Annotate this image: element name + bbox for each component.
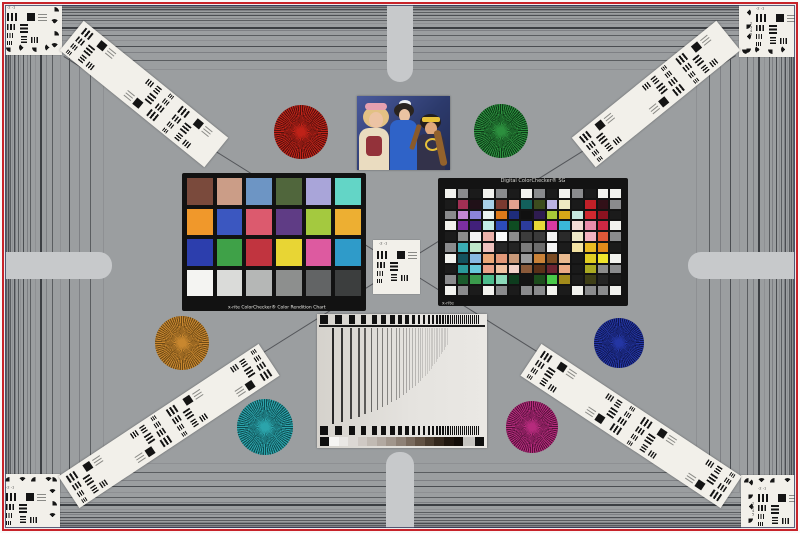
bar-triplet bbox=[756, 34, 762, 39]
bar-triplet bbox=[30, 517, 37, 523]
bar-triplet bbox=[605, 393, 614, 402]
bar-triplet bbox=[771, 505, 779, 514]
sg-patch bbox=[547, 211, 558, 220]
figure-left-crown bbox=[365, 103, 387, 110]
bar-triplet bbox=[146, 109, 159, 122]
sg-patch bbox=[496, 275, 507, 284]
bar-triplet bbox=[640, 417, 653, 429]
sg-patch bbox=[458, 265, 469, 274]
sg-patch bbox=[559, 189, 570, 198]
barcode-bar bbox=[442, 426, 443, 435]
fan-wedge bbox=[6, 43, 15, 52]
bar-triplet bbox=[174, 132, 183, 141]
fan-wedge bbox=[742, 45, 751, 54]
bar-triplet bbox=[177, 424, 185, 431]
sg-patch bbox=[572, 232, 583, 241]
bar-triplet bbox=[153, 85, 162, 94]
fan-wedge bbox=[5, 477, 14, 486]
sg-patch bbox=[534, 189, 545, 198]
bar-triplet bbox=[758, 505, 766, 511]
sg-patch bbox=[547, 275, 558, 284]
bar-triplet bbox=[190, 418, 199, 427]
black-square bbox=[594, 413, 605, 424]
color-patch bbox=[306, 270, 332, 297]
color-patch bbox=[246, 239, 272, 266]
barcode-bar bbox=[474, 315, 475, 324]
figure-left-face bbox=[369, 112, 383, 128]
sg-patch bbox=[470, 243, 481, 252]
sweep-line bbox=[412, 328, 413, 388]
sg-patch bbox=[547, 265, 558, 274]
sg-patch bbox=[483, 232, 494, 241]
sg-patch bbox=[458, 254, 469, 263]
barcode-bar bbox=[458, 426, 459, 435]
sg-patch bbox=[483, 211, 494, 220]
registration-capsule-bottom bbox=[386, 452, 414, 530]
color-patch bbox=[217, 270, 243, 297]
fan-wedge bbox=[31, 477, 40, 486]
sg-patch bbox=[470, 275, 481, 284]
bar-triplet bbox=[624, 411, 632, 418]
sg-patch bbox=[585, 211, 596, 220]
barcode-bar bbox=[452, 426, 453, 435]
sg-patch bbox=[598, 243, 609, 252]
fine-print-row bbox=[789, 501, 798, 502]
barcode-bar bbox=[423, 315, 426, 324]
sweep-line bbox=[422, 328, 423, 378]
bar-triplet bbox=[758, 514, 764, 519]
bar-triplet bbox=[130, 430, 139, 439]
bar-triplet bbox=[635, 426, 645, 435]
ramp-step bbox=[386, 437, 396, 446]
card-scale-labels: -2 -1 bbox=[6, 486, 14, 490]
card-scale-labels: -2 -1 bbox=[7, 6, 15, 10]
bar-triplet bbox=[772, 517, 778, 524]
colorchecker-sg: Digital ColorChecker® SG x-rite bbox=[438, 178, 628, 306]
barcode-bar bbox=[462, 426, 463, 435]
sweep-line bbox=[387, 328, 388, 405]
sg-patch bbox=[547, 254, 558, 263]
sg-patch bbox=[559, 243, 570, 252]
sg-patch bbox=[559, 286, 570, 295]
bar-triplet bbox=[7, 33, 13, 38]
color-patch bbox=[306, 178, 332, 205]
barcode-bar bbox=[428, 426, 430, 435]
sg-patch bbox=[509, 243, 520, 252]
fan-wedge bbox=[783, 478, 792, 487]
bar-triplet bbox=[99, 479, 108, 488]
sg-patch bbox=[458, 232, 469, 241]
barcode-bar bbox=[470, 315, 471, 324]
bar-triplet bbox=[6, 513, 12, 518]
sg-patch bbox=[496, 221, 507, 230]
sg-patch bbox=[598, 275, 609, 284]
siemens-star-magenta bbox=[506, 401, 558, 453]
black-square bbox=[594, 119, 605, 130]
bar-triplet bbox=[672, 84, 685, 97]
barcode-bar bbox=[474, 426, 475, 435]
barcode-bar bbox=[320, 426, 328, 435]
fine-print-row bbox=[408, 252, 417, 253]
sg-patch bbox=[559, 275, 570, 284]
sg-patch bbox=[534, 265, 545, 274]
sg-patch bbox=[585, 232, 596, 241]
sg-patch bbox=[534, 221, 545, 230]
sg-patch bbox=[470, 286, 481, 295]
fan-wedge bbox=[48, 489, 57, 498]
bar-triplet bbox=[75, 36, 85, 46]
black-square bbox=[145, 446, 156, 457]
registration-capsule-left bbox=[3, 252, 112, 279]
colorchecker-sg-title: Digital ColorChecker® SG bbox=[486, 178, 581, 184]
sg-patch bbox=[496, 265, 507, 274]
barcode-bar bbox=[349, 315, 355, 324]
card-scale-labels: -2 -1 bbox=[756, 7, 764, 11]
barcode-bar bbox=[361, 426, 367, 435]
sg-patch bbox=[598, 254, 609, 263]
color-patch bbox=[335, 178, 361, 205]
sg-patch bbox=[483, 200, 494, 209]
fine-print-row bbox=[37, 497, 46, 498]
sg-patch bbox=[559, 232, 570, 241]
bar-triplet bbox=[706, 473, 718, 485]
fan-wedge bbox=[742, 20, 751, 29]
color-patch bbox=[335, 209, 361, 236]
bar-triplet bbox=[244, 366, 256, 378]
test-chart-scene: x-rite ColorChecker® Color Rendition Cha… bbox=[0, 0, 800, 533]
bar-triplet bbox=[177, 106, 190, 119]
sweep-line bbox=[371, 328, 372, 412]
barcode-bar bbox=[456, 426, 457, 435]
sg-patch bbox=[509, 189, 520, 198]
ramp-step bbox=[434, 437, 444, 446]
sg-patch bbox=[598, 221, 609, 230]
sg-patch bbox=[598, 286, 609, 295]
color-patch bbox=[306, 209, 332, 236]
sweep-line bbox=[350, 328, 352, 419]
color-patch bbox=[335, 270, 361, 297]
barcode-bar bbox=[478, 315, 479, 324]
barcode-bar bbox=[460, 426, 461, 435]
barcode-bar bbox=[390, 315, 394, 324]
sg-patch bbox=[572, 265, 583, 274]
bar-triplet bbox=[260, 369, 273, 381]
fine-print-row bbox=[37, 500, 46, 501]
corner-resolution-card-bl: -2 -12345 bbox=[2, 474, 60, 530]
sg-patch bbox=[547, 232, 558, 241]
bar-triplet bbox=[729, 472, 735, 478]
black-square bbox=[26, 493, 34, 501]
barcode-bar bbox=[445, 426, 446, 435]
sg-patch bbox=[470, 265, 481, 274]
colorchecker-sg-brand: x-rite bbox=[442, 301, 454, 306]
sg-patch bbox=[572, 286, 583, 295]
fine-print-row bbox=[408, 255, 417, 256]
card-scale-labels: 2345 bbox=[1, 21, 3, 35]
sg-patch bbox=[547, 221, 558, 230]
bar-triplet bbox=[139, 425, 148, 434]
sg-patch bbox=[521, 243, 532, 252]
bar-triplet bbox=[627, 440, 633, 446]
sweep-divider-line bbox=[319, 325, 485, 327]
sg-patch bbox=[585, 275, 596, 284]
barcode-bar bbox=[478, 426, 479, 435]
sg-patch bbox=[445, 200, 456, 209]
musicians-photo bbox=[357, 96, 450, 170]
sweep-line bbox=[425, 328, 426, 376]
sg-patch bbox=[598, 211, 609, 220]
sg-patch bbox=[534, 254, 545, 263]
sg-patch bbox=[610, 265, 621, 274]
color-patch bbox=[276, 209, 302, 236]
black-square bbox=[132, 98, 143, 109]
bar-triplet bbox=[630, 433, 638, 440]
bar-triplet bbox=[77, 490, 85, 497]
barcode-bar bbox=[428, 315, 430, 324]
color-patch bbox=[246, 270, 272, 297]
card-scale-labels: 2345 bbox=[0, 501, 2, 515]
bar-triplet bbox=[160, 435, 173, 447]
barcode-bar bbox=[372, 315, 377, 324]
bar-triplet bbox=[19, 504, 27, 513]
bar-triplet bbox=[377, 279, 382, 283]
sweep-line bbox=[396, 328, 397, 400]
color-patch bbox=[217, 239, 243, 266]
frequency-sweep-panel bbox=[317, 314, 487, 448]
color-patch bbox=[276, 178, 302, 205]
fine-print-row bbox=[37, 494, 46, 495]
sg-patch bbox=[572, 243, 583, 252]
bar-triplet bbox=[701, 64, 710, 73]
bar-triplet bbox=[153, 421, 161, 428]
barcode-bar bbox=[335, 315, 342, 324]
center-card-labels: -2 -1 bbox=[379, 242, 387, 246]
fan-wedge bbox=[742, 32, 751, 41]
bar-triplet bbox=[83, 474, 95, 486]
sg-patch bbox=[559, 265, 570, 274]
fan-wedge bbox=[768, 45, 777, 54]
sg-patch bbox=[521, 265, 532, 274]
black-square bbox=[657, 428, 668, 439]
sweep-line bbox=[341, 328, 343, 422]
bar-triplet bbox=[391, 274, 397, 281]
bar-triplet bbox=[780, 38, 787, 44]
barcode-bar bbox=[450, 426, 451, 435]
barcode-bar bbox=[381, 315, 386, 324]
color-patch bbox=[246, 209, 272, 236]
bar-triplet bbox=[182, 139, 191, 148]
barcode-bar bbox=[462, 315, 463, 324]
sg-patch bbox=[534, 275, 545, 284]
color-patch bbox=[217, 178, 243, 205]
ramp-step bbox=[367, 437, 377, 446]
sweep-line bbox=[399, 328, 400, 398]
bar-triplet bbox=[166, 121, 174, 129]
bar-triplet bbox=[656, 83, 668, 95]
barcode-bar bbox=[418, 315, 421, 324]
bar-triplet bbox=[539, 377, 548, 386]
barcode-bar bbox=[454, 426, 455, 435]
bar-triplet bbox=[90, 485, 99, 494]
sweep-line bbox=[391, 328, 392, 402]
color-patch bbox=[187, 239, 213, 266]
siemens-star-blue bbox=[594, 318, 644, 368]
bar-triplet bbox=[86, 61, 95, 70]
corner-resolution-card-br: -2 -12345 bbox=[741, 475, 798, 530]
fine-print-row bbox=[38, 20, 47, 21]
sg-patch bbox=[572, 254, 583, 263]
bar-triplet bbox=[639, 444, 648, 453]
card-scale-labels: -2 -1 bbox=[758, 487, 766, 491]
sg-patch bbox=[509, 221, 520, 230]
sg-patch bbox=[585, 189, 596, 198]
sg-patch bbox=[521, 211, 532, 220]
fine-print-row bbox=[38, 17, 47, 18]
sg-patch bbox=[572, 200, 583, 209]
barcode-bar bbox=[442, 315, 443, 324]
color-patch bbox=[246, 178, 272, 205]
sg-patch bbox=[470, 221, 481, 230]
sg-patch bbox=[521, 232, 532, 241]
sg-patch bbox=[509, 275, 520, 284]
fine-print-row bbox=[789, 495, 798, 496]
barcode-bar bbox=[447, 315, 448, 324]
sg-patch bbox=[610, 232, 621, 241]
fine-print-row bbox=[787, 18, 796, 19]
bar-triplet bbox=[693, 78, 699, 84]
bar-triplet bbox=[20, 516, 26, 523]
registration-capsule-right bbox=[688, 252, 797, 279]
sg-patch bbox=[470, 254, 481, 263]
sweep-vertical-lines bbox=[319, 328, 485, 424]
sg-patch bbox=[458, 200, 469, 209]
bar-triplet bbox=[377, 271, 383, 276]
barcode-bar bbox=[436, 315, 438, 324]
sg-patch bbox=[496, 254, 507, 263]
fan-wedge bbox=[19, 43, 28, 52]
sweep-line bbox=[429, 328, 430, 371]
sg-patch bbox=[483, 243, 494, 252]
colorchecker-classic: x-rite ColorChecker® Color Rendition Cha… bbox=[182, 173, 366, 311]
barcode-bar bbox=[472, 426, 473, 435]
sg-patch bbox=[445, 211, 456, 220]
sg-patch bbox=[483, 265, 494, 274]
barcode-bar bbox=[454, 315, 455, 324]
bar-triplet bbox=[145, 79, 154, 88]
barcode-bar bbox=[398, 426, 402, 435]
fan-wedge bbox=[50, 7, 59, 16]
bar-triplet bbox=[83, 44, 95, 56]
sg-patch bbox=[559, 254, 570, 263]
bar-triplet bbox=[692, 54, 704, 66]
fan-wedge bbox=[744, 502, 753, 511]
bar-triplet bbox=[254, 355, 262, 362]
barcode-bar bbox=[456, 315, 457, 324]
barcode-bar bbox=[372, 426, 377, 435]
sg-patch bbox=[496, 243, 507, 252]
bar-triplet bbox=[756, 14, 766, 22]
sg-patch bbox=[598, 200, 609, 209]
sg-patch bbox=[458, 275, 469, 284]
sg-patch bbox=[483, 254, 494, 263]
fan-wedge bbox=[45, 43, 54, 52]
sg-patch bbox=[496, 200, 507, 209]
bar-triplet bbox=[168, 93, 174, 99]
bar-triplet bbox=[629, 406, 635, 412]
bar-triplet bbox=[6, 521, 11, 525]
sweep-top-barcode bbox=[319, 315, 485, 324]
siemens-star-teal bbox=[237, 399, 293, 455]
fine-print-row bbox=[787, 15, 796, 16]
sg-patch bbox=[483, 189, 494, 198]
barcode-bar bbox=[452, 315, 453, 324]
barcode-bar bbox=[439, 315, 441, 324]
sweep-line bbox=[377, 328, 378, 410]
barcode-bar bbox=[436, 426, 438, 435]
figure-left-bodice bbox=[366, 136, 382, 156]
sg-patch bbox=[585, 200, 596, 209]
barcode-bar bbox=[398, 315, 402, 324]
bar-triplet bbox=[78, 54, 87, 63]
barcode-bar bbox=[468, 315, 469, 324]
sg-patch bbox=[509, 211, 520, 220]
barcode-bar bbox=[320, 315, 328, 324]
sweep-line bbox=[409, 328, 410, 390]
bar-triplet bbox=[705, 459, 714, 468]
barcode-bar bbox=[432, 315, 434, 324]
sg-patch bbox=[547, 243, 558, 252]
bar-triplet bbox=[377, 251, 387, 259]
barcode-bar bbox=[432, 426, 434, 435]
sg-patch bbox=[585, 254, 596, 263]
siemens-star-green bbox=[474, 104, 528, 158]
corner-resolution-card-tr: -2 -12345 bbox=[739, 5, 798, 57]
fan-wedge bbox=[44, 477, 53, 486]
bar-triplet bbox=[81, 497, 87, 503]
sg-patch bbox=[483, 221, 494, 230]
ramp-step bbox=[425, 437, 435, 446]
sg-patch bbox=[445, 286, 456, 295]
bar-triplet bbox=[527, 374, 533, 380]
sg-patch bbox=[547, 189, 558, 198]
sg-patch bbox=[585, 243, 596, 252]
fine-print-row bbox=[408, 258, 417, 259]
sg-patch bbox=[598, 265, 609, 274]
fan-wedge bbox=[755, 45, 764, 54]
sg-patch bbox=[534, 200, 545, 209]
barcode-bar bbox=[447, 426, 448, 435]
bar-triplet bbox=[145, 93, 157, 105]
sg-patch bbox=[598, 232, 609, 241]
bar-triplet bbox=[530, 367, 538, 374]
bar-triplet bbox=[162, 98, 170, 106]
sg-patch bbox=[496, 286, 507, 295]
black-square bbox=[556, 362, 567, 373]
color-patch bbox=[187, 178, 213, 205]
black-square bbox=[193, 118, 204, 129]
sweep-line bbox=[427, 328, 428, 374]
bar-triplet bbox=[709, 58, 718, 67]
sg-patch bbox=[610, 286, 621, 295]
ramp-step bbox=[444, 437, 454, 446]
barcode-bar bbox=[439, 426, 441, 435]
bar-triplet bbox=[548, 384, 557, 393]
sg-patch bbox=[483, 275, 494, 284]
sg-patch bbox=[547, 286, 558, 295]
sg-patch bbox=[509, 200, 520, 209]
color-patch bbox=[187, 270, 213, 297]
sg-patch bbox=[445, 189, 456, 198]
